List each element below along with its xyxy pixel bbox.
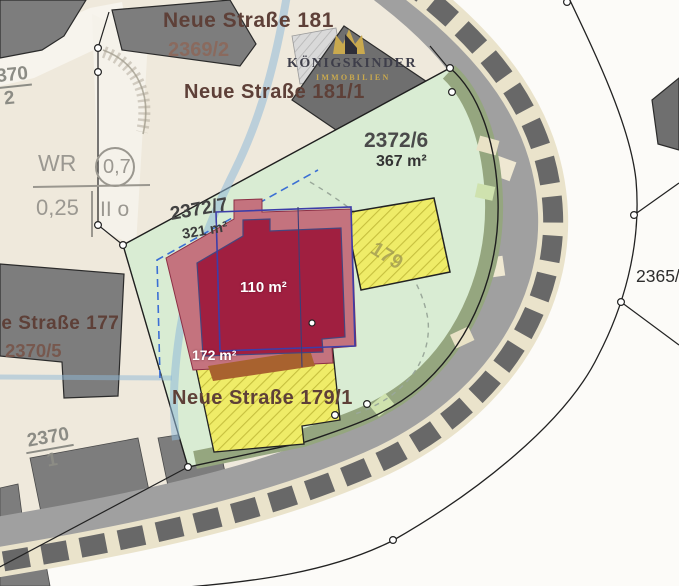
parcel-label-2365: 2365/ (636, 268, 679, 286)
parcel-label-2372-6: 2372/6 (364, 130, 428, 151)
area-label-2372-6: 367 m² (376, 154, 427, 170)
area-label-footprint: 172 m² (192, 348, 236, 362)
zoning-district: WR (38, 152, 76, 175)
zoning-value-top: 0,7 (103, 157, 131, 177)
parcel-label-2370-2: 2370 2 (0, 64, 34, 111)
building-2365 (652, 78, 679, 150)
zoning-value-bottom: 0,25 (36, 197, 79, 219)
stream-branch (0, 377, 172, 378)
parcel-label-2370-5: 2370/5 (5, 342, 62, 361)
street-label-177: Neue Straße 177 (0, 314, 119, 333)
logo-name: KÖNIGSKINDER (287, 57, 417, 71)
site-plan: Neue Straße 181 2369/2 Neue Straße 181/1… (0, 0, 679, 586)
zoning-storeys: II o (100, 199, 129, 220)
parcel-line-se (621, 302, 679, 345)
area-label-main-house: 110 m² (240, 280, 287, 295)
logo-subtitle: IMMOBILIEN (316, 74, 390, 82)
parcel-label-2369-2: 2369/2 (168, 40, 229, 60)
parcel-label-2370-1: 2370 1 (23, 424, 78, 474)
street-label-179-1: Neue Straße 179/1 (172, 388, 353, 408)
street-label-181: Neue Straße 181 (163, 10, 334, 31)
parcel-line-ne (634, 183, 679, 215)
street-label-181-1: Neue Straße 181/1 (184, 82, 365, 102)
